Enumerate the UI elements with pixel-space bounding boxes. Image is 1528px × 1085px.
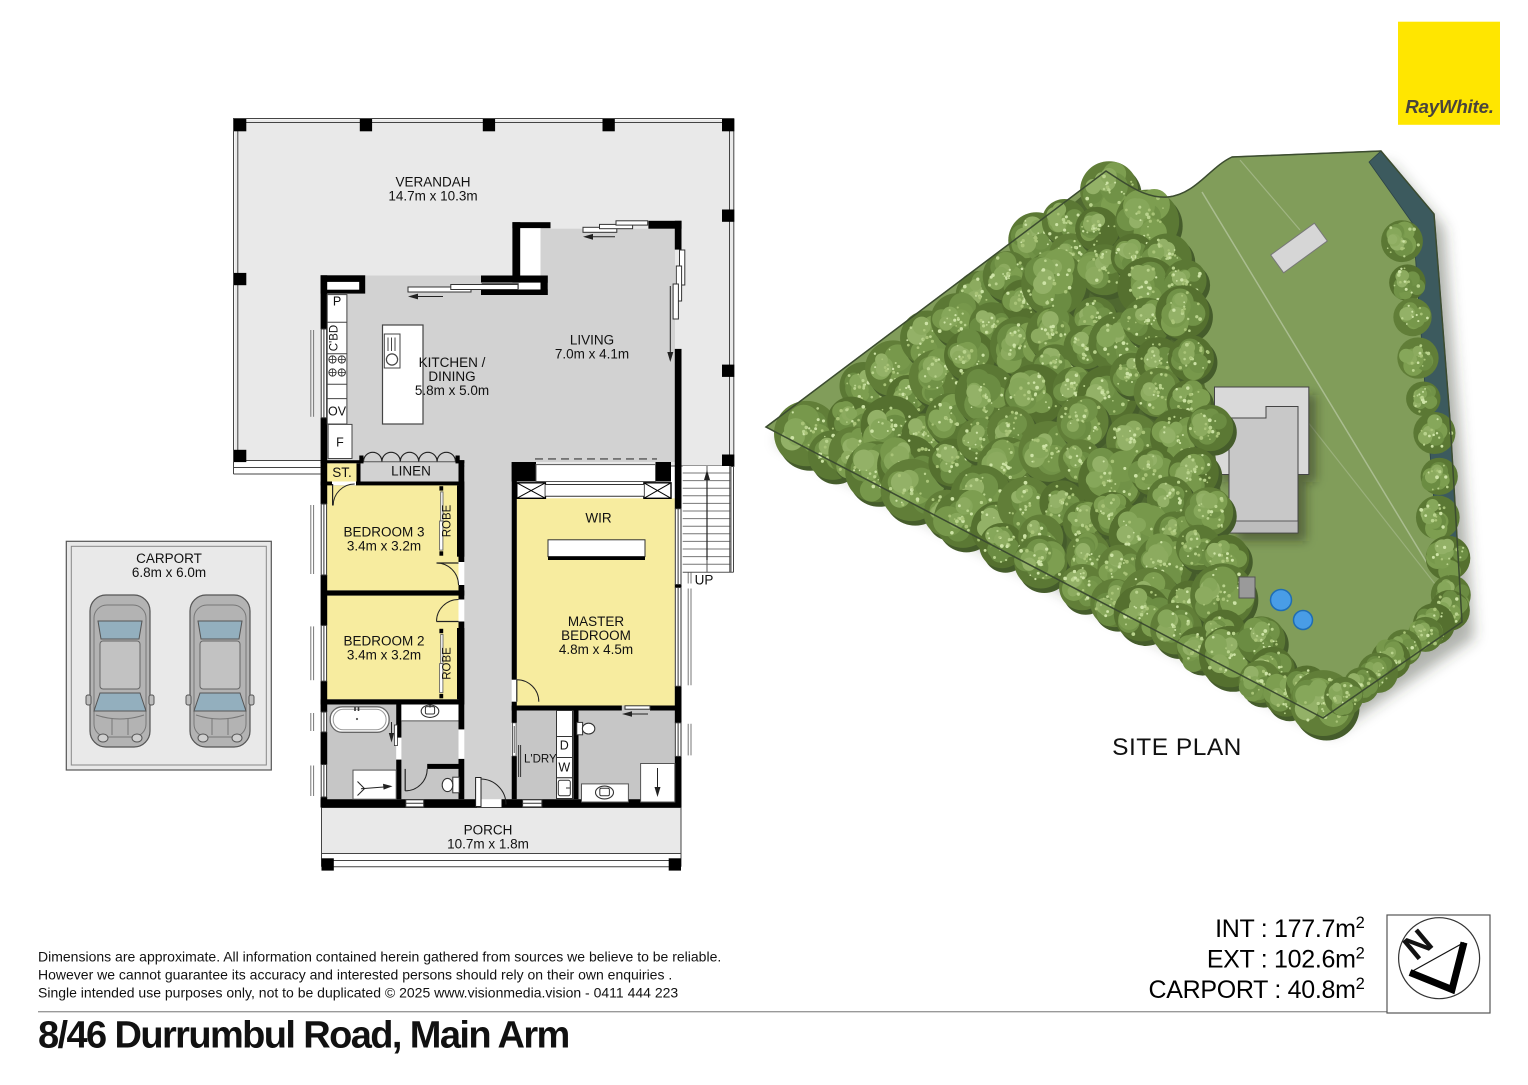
svg-text:MASTER: MASTER: [568, 614, 625, 629]
svg-text:F: F: [336, 436, 344, 450]
svg-text:KITCHEN /: KITCHEN /: [419, 355, 486, 370]
svg-text:5.8m x 5.0m: 5.8m x 5.0m: [415, 383, 489, 398]
svg-text:CARPORT: CARPORT: [136, 551, 202, 566]
svg-text:D: D: [560, 739, 569, 753]
svg-text:Single intended use purposes o: Single intended use purposes only, not t…: [38, 985, 678, 1001]
svg-text:OV: OV: [328, 405, 347, 419]
svg-text:Dimensions are approximate. Al: Dimensions are approximate. All informat…: [38, 949, 721, 965]
svg-text:3.4m x 3.2m: 3.4m x 3.2m: [347, 648, 421, 663]
svg-text:RayWhite.: RayWhite.: [1405, 96, 1494, 117]
svg-text:WIR: WIR: [585, 511, 611, 526]
svg-text:BEDROOM: BEDROOM: [561, 628, 631, 643]
svg-text:7.0m x 4.1m: 7.0m x 4.1m: [555, 347, 629, 362]
svg-text:DINING: DINING: [428, 369, 475, 384]
svg-text:P: P: [333, 295, 341, 309]
svg-text:ROBE: ROBE: [442, 504, 454, 537]
svg-text:VERANDAH: VERANDAH: [395, 175, 470, 190]
svg-text:UP: UP: [695, 573, 714, 588]
svg-text:10.7m x 1.8m: 10.7m x 1.8m: [447, 837, 529, 852]
svg-text:EXT : 102.6m2: EXT : 102.6m2: [1207, 945, 1365, 974]
svg-text:6.8m x 6.0m: 6.8m x 6.0m: [132, 565, 206, 580]
svg-text:4.8m x 4.5m: 4.8m x 4.5m: [559, 642, 633, 657]
svg-text:SITE PLAN: SITE PLAN: [1112, 734, 1242, 761]
svg-text:BEDROOM 3: BEDROOM 3: [343, 525, 424, 540]
svg-text:PORCH: PORCH: [464, 823, 513, 838]
svg-text:However we cannot guarantee it: However we cannot guarantee its accuracy…: [38, 967, 672, 983]
svg-text:L'DRY: L'DRY: [524, 754, 557, 766]
svg-text:C'BD: C'BD: [329, 325, 341, 351]
svg-text:8/46 Durrumbul Road, Main Arm: 8/46 Durrumbul Road, Main Arm: [38, 1015, 569, 1057]
svg-text:3.4m x 3.2m: 3.4m x 3.2m: [347, 539, 421, 554]
svg-text:CARPORT : 40.8m2: CARPORT : 40.8m2: [1148, 975, 1364, 1004]
svg-text:ROBE: ROBE: [442, 647, 454, 680]
svg-text:14.7m x 10.3m: 14.7m x 10.3m: [388, 189, 477, 204]
svg-text:BEDROOM 2: BEDROOM 2: [343, 634, 424, 649]
svg-text:INT : 177.7m2: INT : 177.7m2: [1215, 914, 1364, 943]
svg-text:LIVING: LIVING: [570, 333, 614, 348]
svg-text:ST.: ST.: [332, 465, 352, 480]
svg-text:LINEN: LINEN: [391, 464, 431, 479]
svg-text:W: W: [558, 761, 570, 775]
